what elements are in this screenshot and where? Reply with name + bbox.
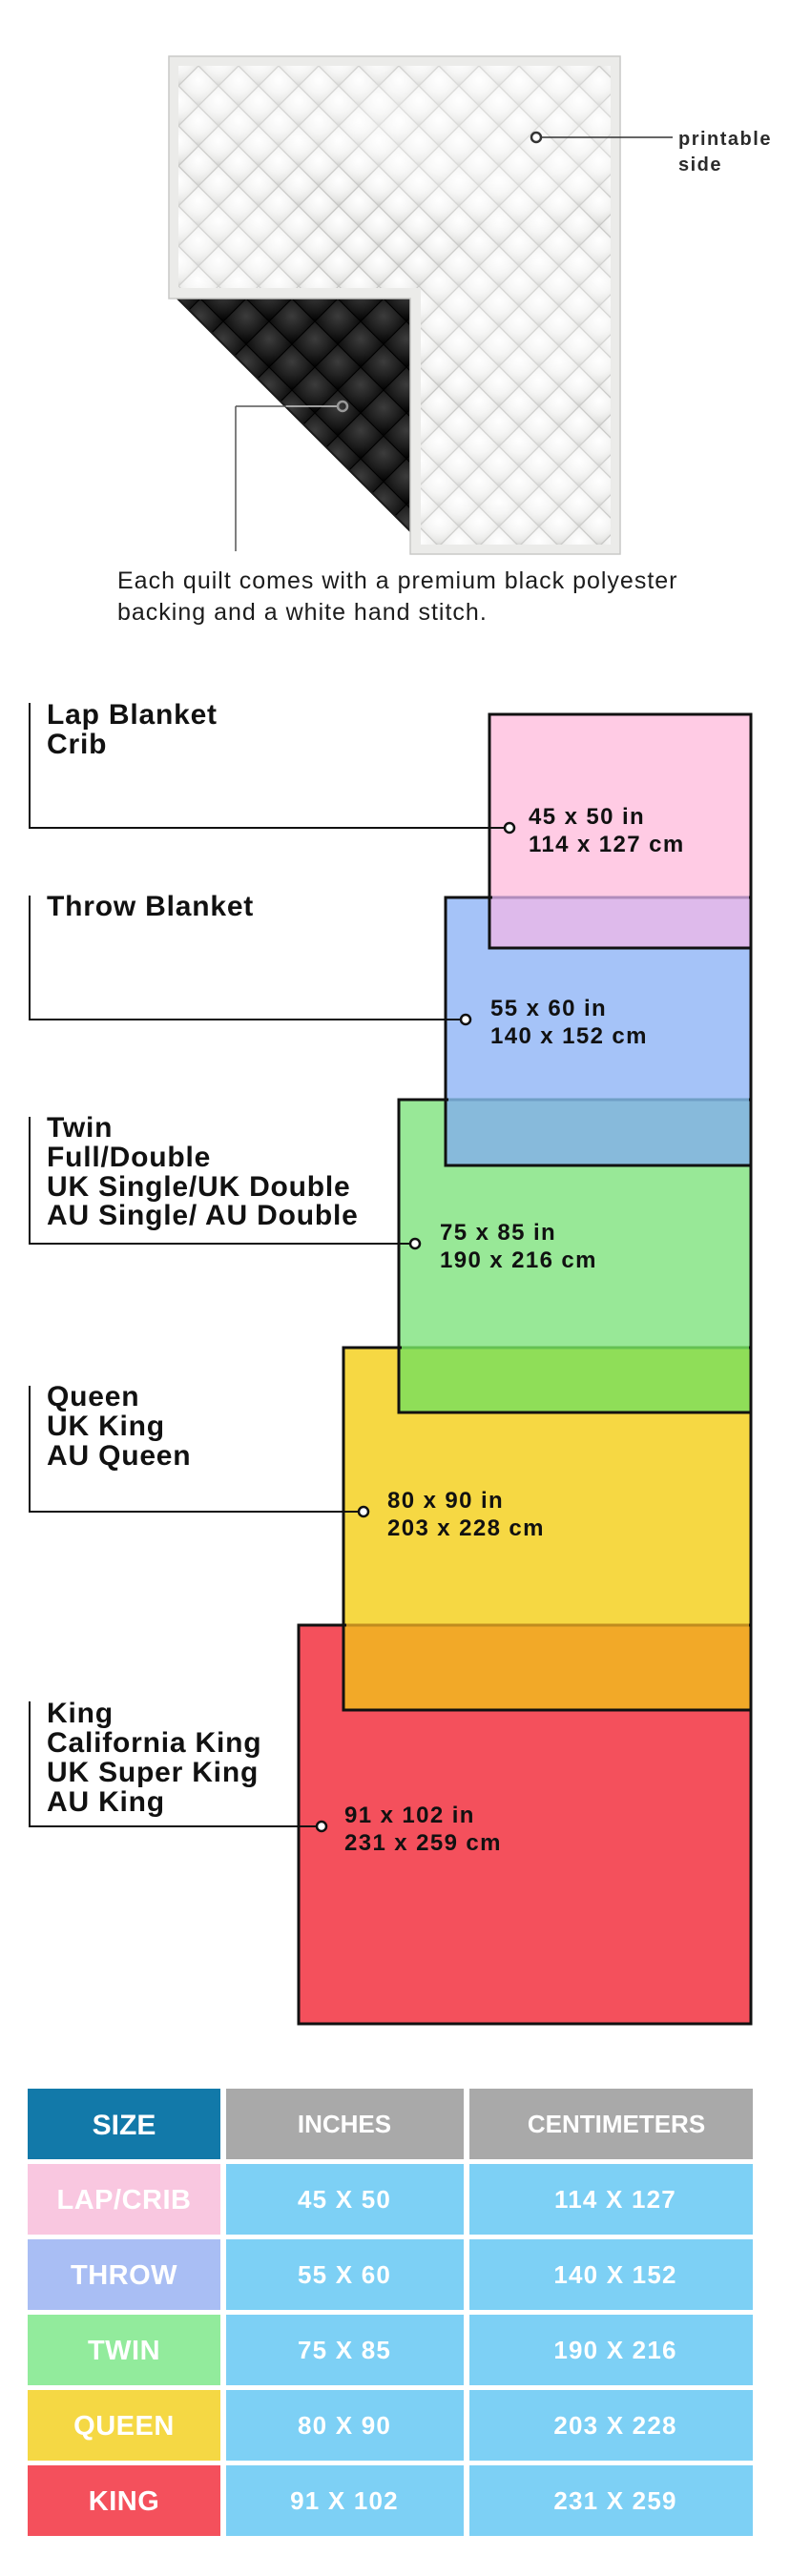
svg-text:AU King: AU King [47, 1786, 165, 1818]
svg-text:INCHES: INCHES [298, 2110, 391, 2138]
svg-text:190 X 216: 190 X 216 [553, 2336, 676, 2364]
svg-text:QUEEN: QUEEN [73, 2411, 175, 2442]
svg-text:45 X 50: 45 X 50 [298, 2185, 391, 2214]
svg-text:AU Single/ AU Double: AU Single/ AU Double [47, 1200, 359, 1231]
svg-text:California King: California King [47, 1727, 261, 1759]
svg-text:80 x 90 in: 80 x 90 in [387, 1488, 504, 1514]
svg-text:140 X 152: 140 X 152 [553, 2260, 676, 2289]
svg-text:55 x 60 in: 55 x 60 in [490, 996, 607, 1021]
svg-text:Full/Double: Full/Double [47, 1142, 211, 1173]
svg-text:UK King: UK King [47, 1411, 165, 1442]
svg-text:140 x 152 cm: 140 x 152 cm [490, 1023, 648, 1049]
svg-text:backing and a white hand stitc: backing and a white hand stitch. [117, 599, 488, 626]
svg-text:LAP/CRIB: LAP/CRIB [57, 2185, 192, 2215]
svg-text:Lap Blanket: Lap Blanket [47, 699, 218, 731]
svg-text:114 x 127 cm: 114 x 127 cm [529, 832, 685, 857]
svg-text:55 X 60: 55 X 60 [298, 2260, 391, 2289]
svg-text:80 X 90: 80 X 90 [298, 2411, 391, 2440]
svg-text:75 x 85 in: 75 x 85 in [440, 1220, 556, 1246]
svg-text:King: King [47, 1698, 114, 1729]
svg-text:Crib: Crib [47, 729, 107, 760]
svg-text:231 x 259 cm: 231 x 259 cm [344, 1830, 502, 1856]
svg-text:printable: printable [678, 129, 772, 150]
svg-text:75 X 85: 75 X 85 [298, 2336, 391, 2364]
svg-text:91 X 102: 91 X 102 [290, 2486, 399, 2515]
svg-text:45 x 50 in: 45 x 50 in [529, 804, 645, 830]
svg-text:TWIN: TWIN [88, 2336, 160, 2366]
svg-text:AU Queen: AU Queen [47, 1440, 191, 1472]
svg-text:UK Single/UK Double: UK Single/UK Double [47, 1171, 351, 1203]
svg-text:THROW: THROW [71, 2260, 177, 2291]
svg-text:114 X 127: 114 X 127 [554, 2185, 676, 2214]
svg-text:SIZE: SIZE [93, 2110, 156, 2141]
svg-text:91 x 102 in: 91 x 102 in [344, 1803, 475, 1828]
svg-text:Each quilt comes with a premiu: Each quilt comes with a premium black po… [117, 567, 678, 594]
svg-text:UK Super King: UK Super King [47, 1757, 259, 1788]
svg-text:side: side [678, 155, 722, 175]
svg-text:203 X 228: 203 X 228 [553, 2411, 676, 2440]
svg-text:203 x 228 cm: 203 x 228 cm [387, 1515, 545, 1541]
svg-text:190 x 216 cm: 190 x 216 cm [440, 1247, 597, 1273]
svg-text:Twin: Twin [47, 1112, 113, 1144]
svg-text:Queen: Queen [47, 1381, 139, 1412]
svg-text:231 X 259: 231 X 259 [553, 2486, 676, 2515]
svg-text:Throw Blanket: Throw Blanket [47, 891, 254, 922]
svg-text:CENTIMETERS: CENTIMETERS [528, 2110, 705, 2138]
svg-text:KING: KING [89, 2486, 160, 2517]
